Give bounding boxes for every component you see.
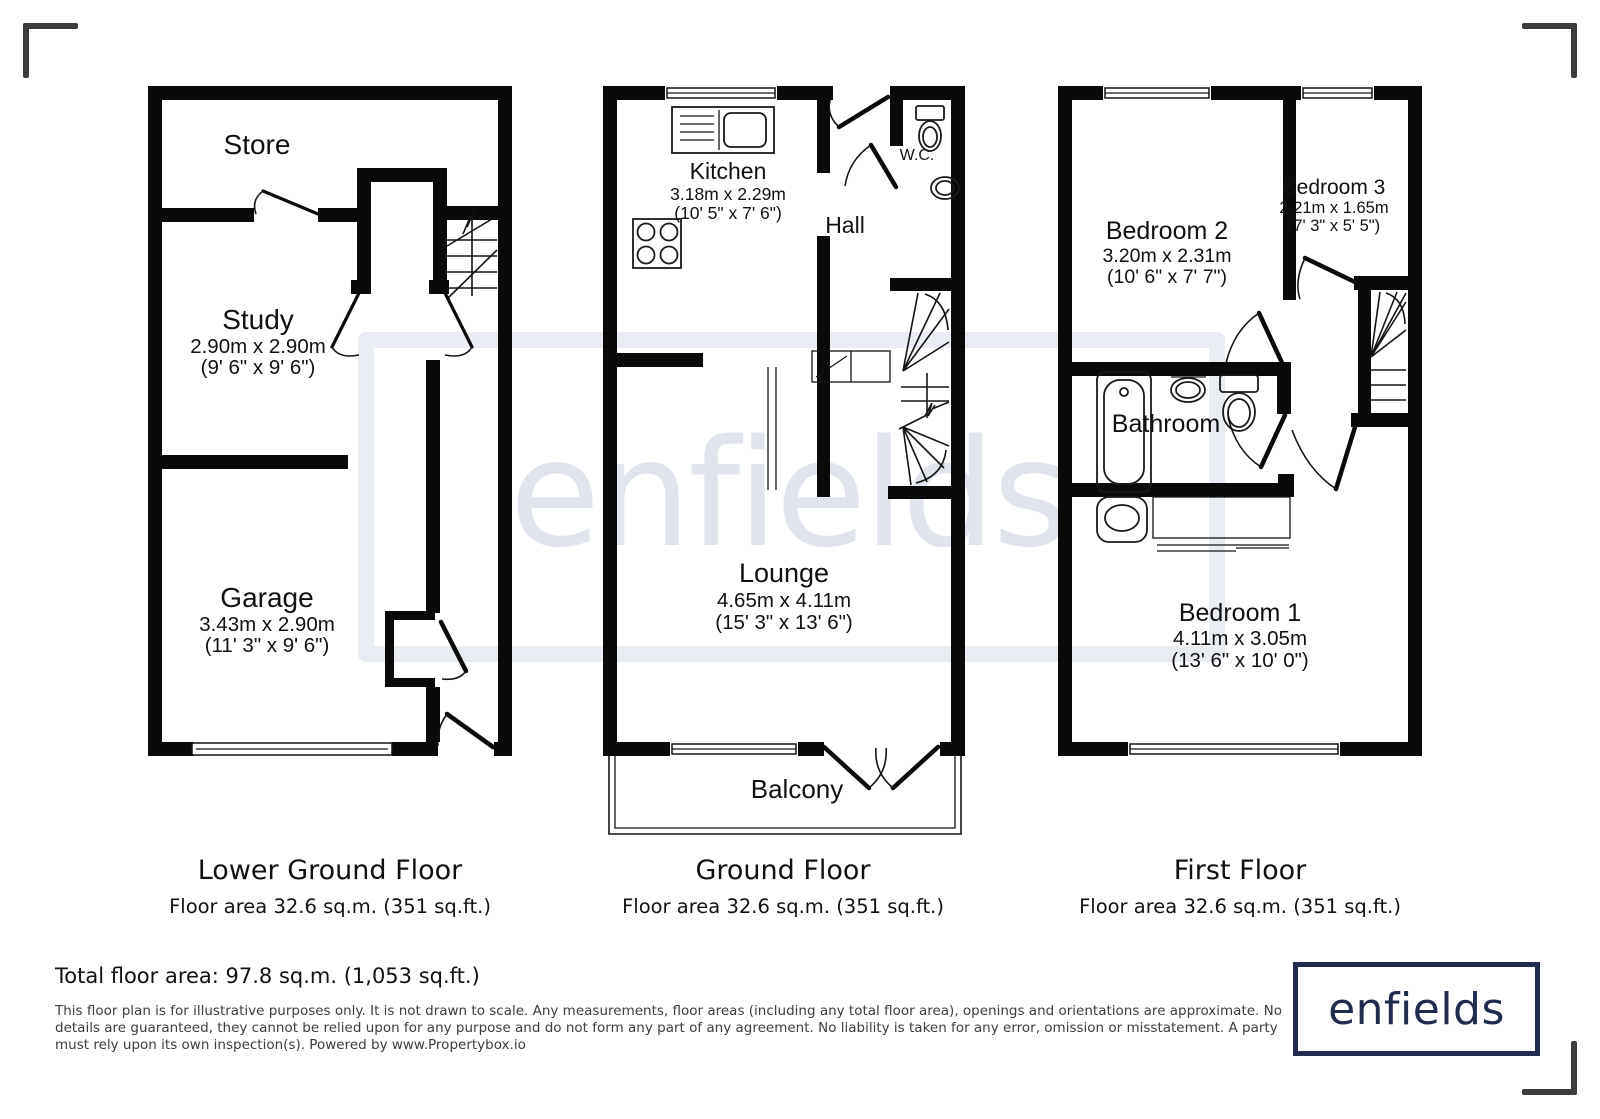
room-dim-metric-lounge: 4.65m x 4.11m xyxy=(717,590,851,612)
room-dim-metric-study: 2.90m x 2.90m xyxy=(190,336,326,358)
floor-title-lower-ground: Lower Ground Floor xyxy=(198,855,463,886)
room-dim-imperial-kitchen: (10' 5" x 7' 6") xyxy=(674,204,782,223)
hob-icon xyxy=(633,219,681,268)
room-dim-metric-garage: 3.43m x 2.90m xyxy=(199,614,335,636)
room-label-hall: Hall xyxy=(825,213,865,238)
floor-title-first: First Floor xyxy=(1174,855,1307,886)
enfields-logo: enfields xyxy=(1293,962,1540,1056)
shower-icon xyxy=(1097,497,1147,542)
toilet-icon xyxy=(1220,375,1258,431)
room-dim-imperial-study: (9' 6" x 9' 6") xyxy=(201,357,316,379)
stairs-icon xyxy=(1371,292,1406,400)
floor-area-lower-ground: Floor area 32.6 sq.m. (351 sq.ft.) xyxy=(169,895,491,918)
room-label-balcony: Balcony xyxy=(751,775,844,803)
room-dim-imperial-bedroom-2: (10' 6" x 7' 7") xyxy=(1107,267,1227,288)
room-label-store: Store xyxy=(224,130,291,160)
room-dim-metric-bedroom-3: 2.21m x 1.65m xyxy=(1279,200,1388,218)
room-dim-metric-kitchen: 3.18m x 2.29m xyxy=(670,185,786,204)
room-label-study: Study xyxy=(222,305,294,335)
sink-unit-icon xyxy=(672,107,774,153)
room-dim-imperial-bedroom-1: (13' 6" x 10' 0") xyxy=(1171,650,1308,672)
room-dim-imperial-garage: (11' 3" x 9' 6") xyxy=(205,635,330,657)
basin-icon xyxy=(931,177,959,199)
stairs-icon xyxy=(447,209,497,299)
window-icon xyxy=(192,743,392,755)
room-label-bedroom-3: Bedroom 3 xyxy=(1283,177,1386,200)
disclaimer-line-1: This floor plan is for illustrative purp… xyxy=(55,1003,1282,1020)
plan-lower-ground-floor xyxy=(148,86,512,756)
room-label-bedroom-2: Bedroom 2 xyxy=(1106,218,1228,245)
floor-title-ground: Ground Floor xyxy=(695,855,870,886)
room-label-wc: W.C. xyxy=(900,147,935,164)
room-dim-imperial-lounge: (15' 3" x 13' 6") xyxy=(715,612,852,634)
room-label-lounge: Lounge xyxy=(739,559,829,588)
room-dim-metric-bedroom-2: 3.20m x 2.31m xyxy=(1103,246,1232,267)
room-label-bathroom: Bathroom xyxy=(1112,411,1220,438)
room-dim-imperial-bedroom-3: (7' 3" x 5' 5") xyxy=(1288,218,1380,236)
basin-icon xyxy=(1171,377,1206,402)
disclaimer-text: This floor plan is for illustrative purp… xyxy=(55,1003,1282,1054)
floor-area-first: Floor area 32.6 sq.m. (351 sq.ft.) xyxy=(1079,895,1401,918)
floor-area-ground: Floor area 32.6 sq.m. (351 sq.ft.) xyxy=(622,895,944,918)
floorplan-page: enfields xyxy=(0,0,1600,1119)
room-dim-metric-bedroom-1: 4.11m x 3.05m xyxy=(1173,628,1307,650)
toilet-icon xyxy=(916,106,944,151)
wardrobe-icon xyxy=(1153,497,1290,551)
stairs-icon xyxy=(812,293,949,485)
enfields-logo-text: enfields xyxy=(1328,984,1505,1035)
total-floor-area: Total floor area: 97.8 sq.m. (1,053 sq.f… xyxy=(55,964,480,988)
room-label-kitchen: Kitchen xyxy=(690,159,767,184)
disclaimer-line-2: details are guaranteed, they cannot be r… xyxy=(55,1020,1282,1037)
door-icons xyxy=(824,97,938,788)
kitchen-counter xyxy=(768,367,776,490)
room-label-bedroom-1: Bedroom 1 xyxy=(1179,600,1301,627)
room-label-garage: Garage xyxy=(220,583,313,613)
disclaimer-line-3: must rely upon its own inspection(s). Po… xyxy=(55,1037,1282,1054)
